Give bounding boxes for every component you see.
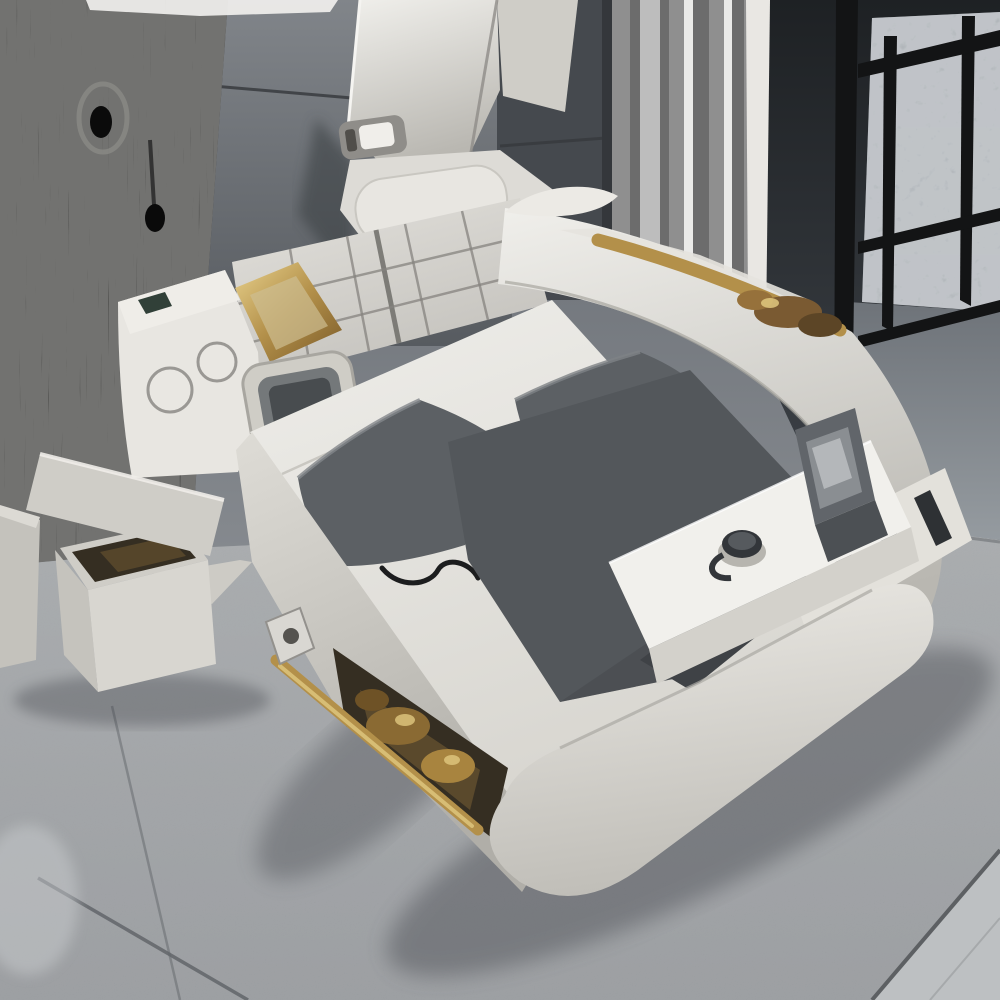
ottoman-shadow — [14, 674, 270, 726]
slot-inner — [358, 121, 395, 149]
speaker-right — [198, 343, 236, 381]
speaker-left — [148, 368, 192, 412]
left-edge-box — [0, 508, 40, 668]
gold-glint — [761, 298, 779, 308]
wood-knot-core — [90, 106, 112, 138]
photo-canvas: Gray multifunctional smart bed with mass… — [0, 0, 1000, 1000]
side-boxes — [0, 454, 224, 692]
bedroom-photo: Gray multifunctional smart bed with mass… — [0, 0, 1000, 1000]
bronze-ornament — [798, 313, 842, 337]
gold-item-glint — [444, 755, 460, 765]
bracket-hole — [283, 628, 299, 644]
cup-inner — [728, 532, 756, 550]
wood-drip-blob — [145, 204, 165, 232]
backrest-side-panel — [497, 0, 578, 112]
gold-item-glint — [395, 714, 415, 726]
gold-item — [355, 689, 389, 711]
gold-item — [421, 749, 475, 783]
